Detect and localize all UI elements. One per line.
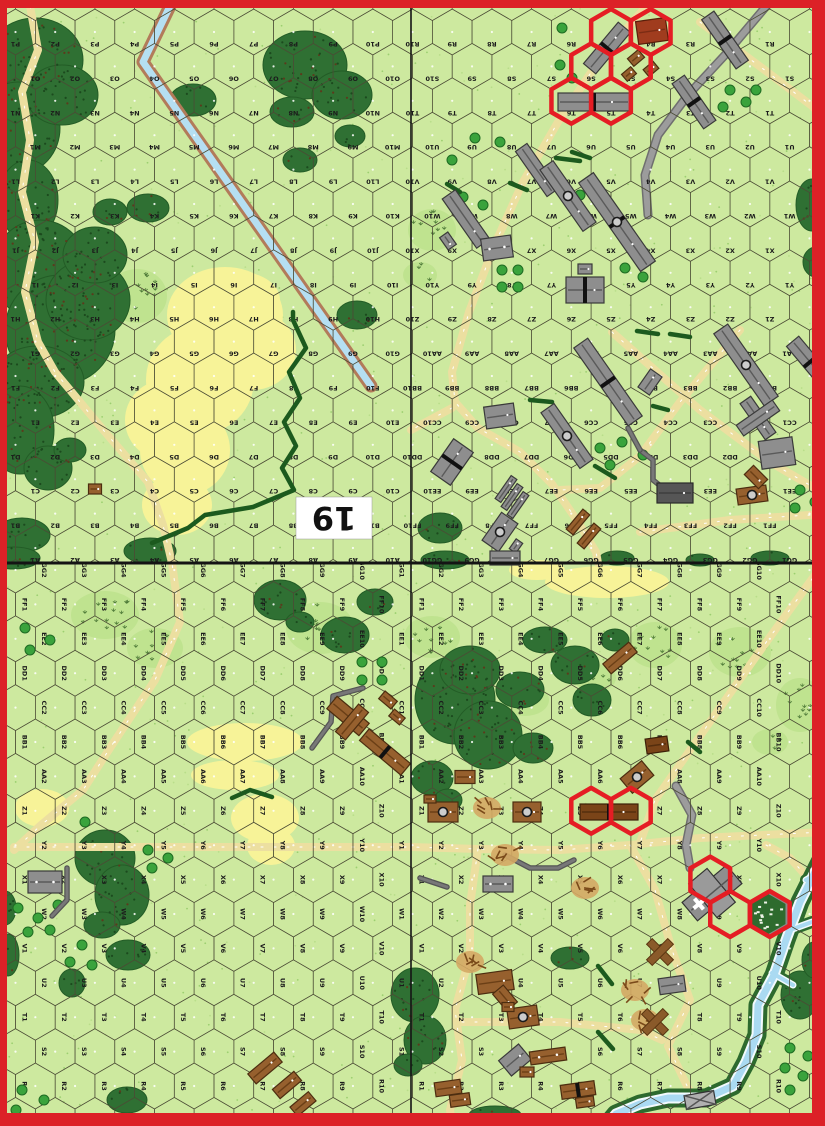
hex-label: X2: [457, 875, 465, 885]
hex-label: Z10: [775, 804, 783, 818]
hex-label: I3: [111, 281, 118, 289]
hex-center-dot: [74, 409, 76, 411]
hex-center-dot: [94, 1051, 96, 1053]
hex-center-dot: [630, 603, 632, 605]
hex-label: H3: [90, 315, 100, 323]
hex-center-dot: [312, 272, 314, 274]
woods-texture: [419, 984, 421, 986]
hex-label: Z8: [487, 315, 497, 323]
woods-texture: [504, 731, 506, 733]
hex-center-dot: [749, 341, 751, 343]
hex-label: V4: [139, 944, 147, 954]
woods: [357, 589, 393, 615]
ground-speck: [507, 1082, 509, 1084]
hex-label: BB3: [100, 735, 108, 749]
ground-speck: [691, 1033, 693, 1035]
woods-texture: [42, 329, 44, 331]
hex-label: S9: [318, 1047, 326, 1057]
woods-texture: [99, 273, 101, 275]
ground-speck: [137, 830, 139, 832]
hex-center-dot: [292, 707, 294, 709]
hex-label: BB9: [445, 384, 460, 392]
building-stone: [484, 403, 517, 429]
ground-speck: [706, 497, 708, 499]
ground-speck: [465, 538, 467, 540]
hex-label: H7: [249, 315, 259, 323]
hex-center-dot: [272, 341, 274, 343]
woods-texture: [460, 729, 462, 731]
hex-center-dot: [570, 982, 572, 984]
building-stone: [758, 437, 796, 469]
hex-center-dot: [312, 134, 314, 136]
woods-texture: [84, 314, 86, 316]
hex-label: EE7: [239, 632, 247, 645]
woods-texture: [132, 204, 134, 206]
ground-speck: [147, 162, 149, 164]
woods-texture: [798, 1007, 800, 1009]
hex-label: D10: [365, 453, 380, 461]
ground-speck: [59, 1096, 61, 1098]
woods-texture: [12, 900, 14, 902]
ground-speck: [352, 814, 354, 816]
hex-center-dot: [233, 1085, 235, 1087]
woods-texture: [186, 93, 188, 95]
hex-center-dot: [669, 741, 671, 743]
ground-speck: [110, 402, 112, 404]
hex-center-dot: [471, 65, 473, 67]
ground-speck: [244, 419, 246, 421]
hex-label: T9: [338, 1013, 346, 1022]
ground-speck: [725, 82, 727, 84]
ground-speck: [794, 573, 796, 575]
hex-center-dot: [471, 741, 473, 743]
hex-center-dot: [570, 707, 572, 709]
hex-center-dot: [272, 810, 274, 812]
woods-texture: [50, 294, 52, 296]
hex-center-dot: [808, 707, 810, 709]
hex-center-dot: [471, 341, 473, 343]
hex-center-dot: [610, 775, 612, 777]
ground-speck: [602, 434, 604, 436]
hex-center-dot: [272, 947, 274, 949]
woods-texture: [82, 302, 84, 304]
hex-center-dot: [34, 478, 36, 480]
ground-speck: [599, 651, 601, 653]
hex-label: J10: [367, 246, 380, 254]
hex-center-dot: [134, 31, 136, 33]
woods-texture: [47, 206, 49, 208]
hex-label: T9: [447, 109, 456, 117]
woods-texture: [70, 311, 72, 313]
woods-texture: [369, 606, 371, 608]
hex-center-dot: [531, 237, 533, 239]
hex-map-svg[interactable]: P1P2P3P4P5P6P7P8P9P10R10R9R8R7R6R5R4R3R2…: [0, 0, 825, 1126]
woods-texture: [7, 210, 9, 212]
hex-center-dot: [14, 1051, 16, 1053]
hex-label: CC3: [703, 418, 717, 426]
woods-texture: [15, 226, 17, 228]
woods-texture: [73, 45, 75, 47]
woods-texture: [21, 249, 23, 251]
hex-center-dot: [610, 306, 612, 308]
hex-label: Y3: [80, 840, 88, 850]
hex-center-dot: [193, 672, 195, 674]
hex-center-dot: [808, 444, 810, 446]
woods-texture: [53, 28, 55, 30]
ground-speck: [721, 405, 723, 407]
ground-speck: [700, 277, 702, 279]
ground-speck: [709, 59, 711, 61]
hex-center-dot: [173, 100, 175, 102]
hex-center-dot: [34, 672, 36, 674]
hex-center-dot: [789, 947, 791, 949]
hex-center-dot: [689, 707, 691, 709]
hex-label: H1: [10, 315, 20, 323]
hex-center-dot: [114, 1016, 116, 1018]
woods-texture: [23, 56, 25, 58]
hex-center-dot: [54, 306, 56, 308]
woods-texture: [30, 386, 32, 388]
woods-texture: [33, 393, 35, 395]
woods-texture: [109, 307, 111, 309]
tree-icon: [357, 675, 367, 685]
woods-texture: [340, 646, 342, 648]
woods-texture: [474, 690, 476, 692]
woods-texture: [23, 72, 25, 74]
woods-texture: [83, 309, 85, 311]
hex-center-dot: [94, 444, 96, 446]
hex-label: T8: [298, 1013, 306, 1022]
hex-label: S9: [467, 74, 477, 82]
ground-speck: [297, 851, 299, 853]
ground-speck: [362, 344, 364, 346]
hex-label: U4: [665, 143, 675, 151]
door-dot: [489, 883, 492, 886]
woods-texture: [405, 1008, 407, 1010]
hex-label: Y8: [675, 840, 683, 851]
woods-texture: [19, 436, 21, 438]
woods-texture: [78, 979, 80, 981]
ground-speck: [155, 952, 157, 954]
hex-center-dot: [332, 169, 334, 171]
hex-center-dot: [610, 569, 612, 571]
hex-center-dot: [491, 775, 493, 777]
woods-texture: [53, 264, 55, 266]
hex-center-dot: [749, 65, 751, 67]
ground-speck: [740, 765, 742, 767]
hex-center-dot: [431, 741, 433, 743]
hex-label: R10: [405, 40, 420, 48]
woods-texture: [106, 217, 108, 219]
hex-center-dot: [372, 306, 374, 308]
hex-center-dot: [272, 203, 274, 205]
hex-label: I1: [31, 281, 38, 289]
hex-center-dot: [610, 844, 612, 846]
hex-center-dot: [471, 947, 473, 949]
woods-texture: [35, 114, 37, 116]
hex-center-dot: [173, 306, 175, 308]
woods-texture: [29, 107, 31, 109]
ground-speck: [692, 988, 694, 990]
hex-label: DD2: [722, 453, 737, 461]
hex-label: U3: [80, 978, 88, 988]
woods-texture: [111, 1098, 113, 1100]
hex-center-dot: [14, 444, 16, 446]
hex-center-dot: [253, 707, 255, 709]
hex-label: DD9: [338, 666, 346, 682]
hex-center-dot: [808, 306, 810, 308]
tree-icon: [80, 817, 90, 827]
hex-center-dot: [630, 478, 632, 480]
woods-texture: [466, 663, 468, 665]
hex-center-dot: [769, 513, 771, 515]
hex-label: AA8: [504, 350, 519, 358]
woods-texture: [483, 667, 485, 669]
hex-center-dot: [292, 513, 294, 515]
woods-texture: [74, 255, 76, 257]
woods-texture: [434, 1047, 436, 1049]
ground-speck: [803, 449, 805, 451]
hex-label: F7: [249, 384, 258, 392]
woods-texture: [56, 448, 58, 450]
tree-icon: [790, 503, 800, 513]
hex-label: V7: [259, 944, 267, 954]
tree-icon: [780, 1063, 790, 1073]
hex-label: U9: [467, 143, 477, 151]
woods-texture: [84, 339, 86, 341]
hex-center-dot: [590, 1016, 592, 1018]
hex-label: X4: [139, 875, 147, 885]
woods-texture: [53, 139, 55, 141]
hex-label: C9: [348, 487, 358, 495]
hex-center-dot: [769, 569, 771, 571]
woods-texture: [31, 341, 33, 343]
hex-center-dot: [193, 810, 195, 812]
hex-label: U3: [705, 143, 715, 151]
hex-center-dot: [610, 638, 612, 640]
hex-center-dot: [392, 741, 394, 743]
hex-center-dot: [74, 203, 76, 205]
ground-speck: [221, 968, 223, 970]
ground-speck: [782, 660, 784, 662]
hex-label: V5: [606, 178, 616, 186]
ground-speck: [108, 82, 110, 84]
ground-speck: [195, 841, 197, 843]
ground-speck: [130, 798, 132, 800]
hex-center-dot: [570, 375, 572, 377]
tree-icon: [497, 282, 507, 292]
hex-label: V4: [536, 944, 544, 954]
hex-label: Z10: [378, 804, 386, 818]
ground-speck: [173, 782, 175, 784]
door-dot: [510, 1006, 512, 1008]
hex-label: AA6: [596, 769, 604, 784]
hex-center-dot: [233, 672, 235, 674]
hex-center-dot: [769, 31, 771, 33]
hex-label: T1: [765, 109, 774, 117]
hex-label: Z7: [259, 806, 267, 815]
hex-label: T10: [775, 1010, 783, 1024]
woods-texture: [567, 673, 569, 675]
hex-center-dot: [550, 478, 552, 480]
hex-center-dot: [590, 603, 592, 605]
hex-label: N8: [288, 109, 298, 117]
hex-center-dot: [114, 203, 116, 205]
hex-label: R1: [765, 40, 775, 48]
woods-texture: [30, 363, 32, 365]
hex-label: V4: [645, 178, 655, 186]
hex-center-dot: [570, 844, 572, 846]
woods-texture: [310, 622, 312, 624]
woods-texture: [471, 660, 473, 662]
ground-speck: [151, 188, 153, 190]
hex-center-dot: [689, 844, 691, 846]
woods-texture: [346, 138, 348, 140]
hex-label: Y7: [239, 840, 247, 850]
hex-label: C5: [189, 487, 199, 495]
hex-center-dot: [709, 947, 711, 949]
ground-speck: [379, 638, 381, 640]
hex-label: N3: [90, 109, 100, 117]
hex-label: V3: [686, 178, 696, 186]
woods-texture: [486, 678, 488, 680]
hex-center-dot: [729, 913, 731, 915]
hex-label: AA2: [40, 769, 48, 784]
ground-speck: [567, 235, 569, 237]
hex-center-dot: [650, 844, 652, 846]
hex-center-dot: [193, 741, 195, 743]
grave-marker: [769, 913, 772, 915]
hex-center-dot: [352, 741, 354, 743]
hex-center-dot: [511, 672, 513, 674]
hex-label: V10: [775, 941, 783, 956]
woods-texture: [17, 199, 19, 201]
hex-center-dot: [233, 741, 235, 743]
woods-texture: [9, 181, 11, 183]
woods-texture: [121, 883, 123, 885]
ground-speck: [60, 21, 62, 23]
hex-center-dot: [253, 638, 255, 640]
hex-center-dot: [34, 134, 36, 136]
hex-label: BB1: [417, 735, 425, 750]
hex-label: U8: [278, 978, 286, 988]
woods-texture: [102, 924, 104, 926]
woods-texture: [26, 338, 28, 340]
hex-label: G3: [110, 350, 120, 358]
hex-center-dot: [471, 478, 473, 480]
woods-texture: [67, 445, 69, 447]
hex-label: X6: [219, 875, 227, 885]
woods-texture: [319, 53, 321, 55]
hex-center-dot: [709, 603, 711, 605]
ground-speck: [565, 812, 567, 814]
hex-label: L9: [328, 178, 337, 186]
hex-center-dot: [471, 672, 473, 674]
hex-label: GG2: [437, 562, 445, 577]
hex-center-dot: [213, 707, 215, 709]
hex-center-dot: [34, 947, 36, 949]
hex-center-dot: [749, 603, 751, 605]
hex-label: FF2: [60, 598, 68, 611]
woods-texture: [466, 699, 468, 701]
hex-label: S8: [507, 74, 517, 82]
woods-texture: [439, 696, 441, 698]
hex-center-dot: [272, 65, 274, 67]
woods-texture: [337, 87, 339, 89]
hex-center-dot: [392, 203, 394, 205]
hex-center-dot: [372, 638, 374, 640]
hex-center-dot: [769, 1051, 771, 1053]
woods-texture: [91, 306, 93, 308]
door-dot: [683, 492, 685, 494]
woods-texture: [66, 102, 68, 104]
woods-texture: [283, 78, 285, 80]
woods-texture: [612, 632, 614, 634]
hex-label: U5: [625, 143, 635, 151]
hex-label: L3: [91, 178, 100, 186]
ground-speck: [119, 428, 121, 430]
ground-speck: [633, 975, 635, 977]
hex-label: L10: [366, 178, 380, 186]
hex-label: DD3: [100, 666, 108, 681]
hex-center-dot: [630, 947, 632, 949]
ground-speck: [697, 763, 699, 765]
hex-label: V3: [497, 944, 505, 954]
hex-center-dot: [630, 741, 632, 743]
woods-texture: [807, 954, 809, 956]
ground-speck: [661, 304, 663, 306]
woods-texture: [41, 212, 43, 214]
woods-texture: [297, 77, 299, 79]
hex-center-dot: [34, 65, 36, 67]
ground-speck: [90, 898, 92, 900]
building-wood: [736, 485, 768, 505]
hex-label: W1: [783, 212, 795, 220]
ground-speck: [538, 108, 540, 110]
ground-speck: [739, 841, 741, 843]
hex-label: AA4: [663, 350, 678, 358]
hex-label: W3: [80, 908, 88, 920]
ground-speck: [412, 440, 414, 442]
hex-center-dot: [332, 638, 334, 640]
woods-texture: [27, 395, 29, 397]
vasl-map-board[interactable]: P1P2P3P4P5P6P7P8P9P10R10R9R8R7R6R5R4R3R2…: [0, 0, 825, 1126]
woods-texture: [109, 911, 111, 913]
ground-speck: [777, 433, 779, 435]
ground-speck: [401, 411, 403, 413]
woods-texture: [53, 330, 55, 332]
hex-label: S10: [358, 1045, 366, 1059]
hex-center-dot: [352, 203, 354, 205]
ground-speck: [558, 227, 560, 229]
woods-texture: [473, 735, 475, 737]
hex-label: M3: [109, 143, 120, 151]
hex-center-dot: [372, 169, 374, 171]
woods-texture: [268, 598, 270, 600]
hex-center-dot: [769, 982, 771, 984]
hex-center-dot: [193, 65, 195, 67]
hex-label: Y2: [745, 281, 755, 289]
woods-texture: [394, 990, 396, 992]
hex-center-dot: [689, 569, 691, 571]
hex-center-dot: [590, 547, 592, 549]
ground-speck: [709, 614, 711, 616]
ground-speck: [100, 160, 102, 162]
hex-center-dot: [54, 31, 56, 33]
hex-label: CC7: [636, 701, 644, 715]
hex-label: W7: [239, 908, 247, 920]
hex-center-dot: [550, 65, 552, 67]
